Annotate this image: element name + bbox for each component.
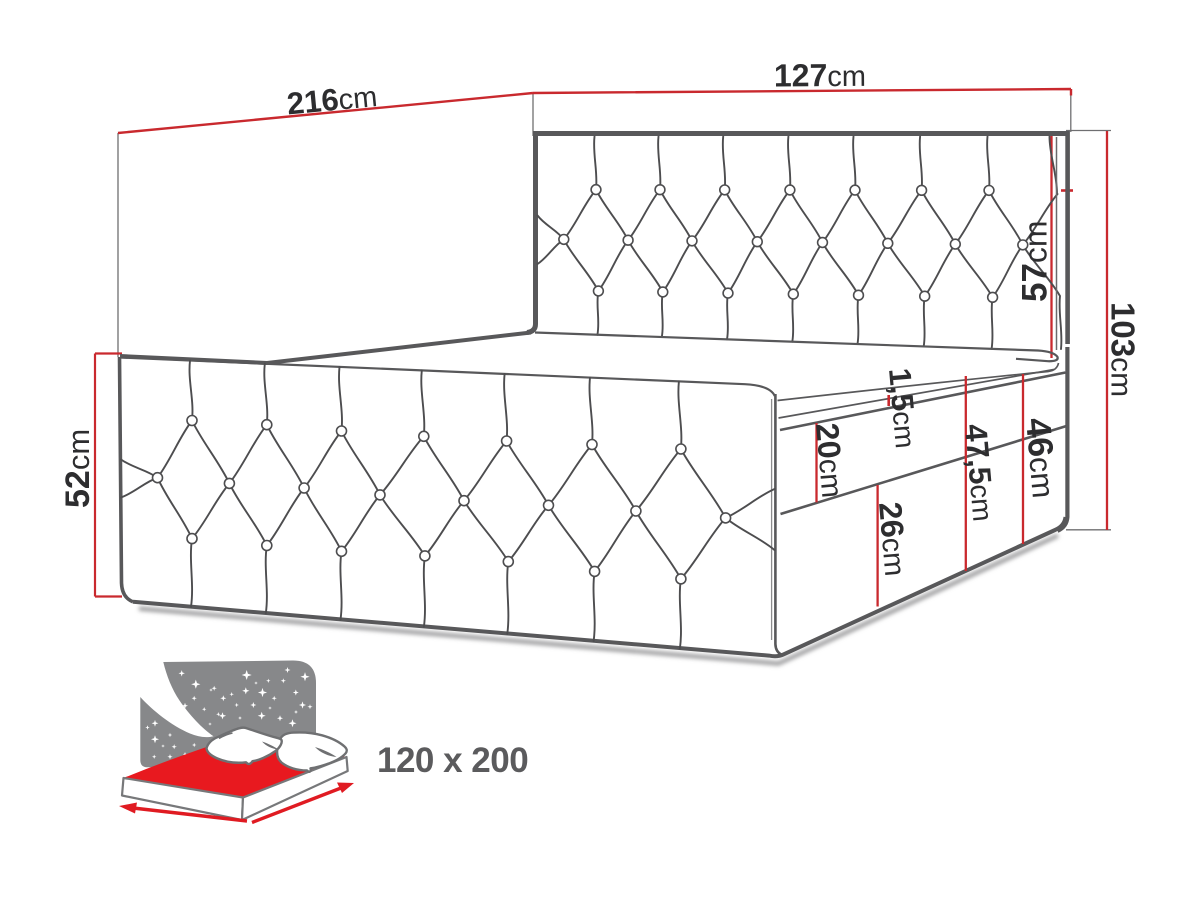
svg-text:216cm: 216cm — [285, 78, 378, 121]
svg-text:26cm: 26cm — [872, 500, 914, 577]
svg-text:20cm: 20cm — [809, 421, 851, 499]
svg-text:103cm: 103cm — [1105, 302, 1142, 397]
svg-text:1,5cm: 1,5cm — [882, 367, 924, 450]
svg-text:57cm: 57cm — [1016, 220, 1055, 302]
svg-text:120 x 200: 120 x 200 — [377, 741, 528, 780]
svg-text:46cm: 46cm — [1018, 416, 1064, 499]
svg-text:47,5cm: 47,5cm — [958, 423, 1001, 523]
svg-text:52cm: 52cm — [59, 429, 97, 508]
svg-text:127cm: 127cm — [774, 57, 866, 94]
